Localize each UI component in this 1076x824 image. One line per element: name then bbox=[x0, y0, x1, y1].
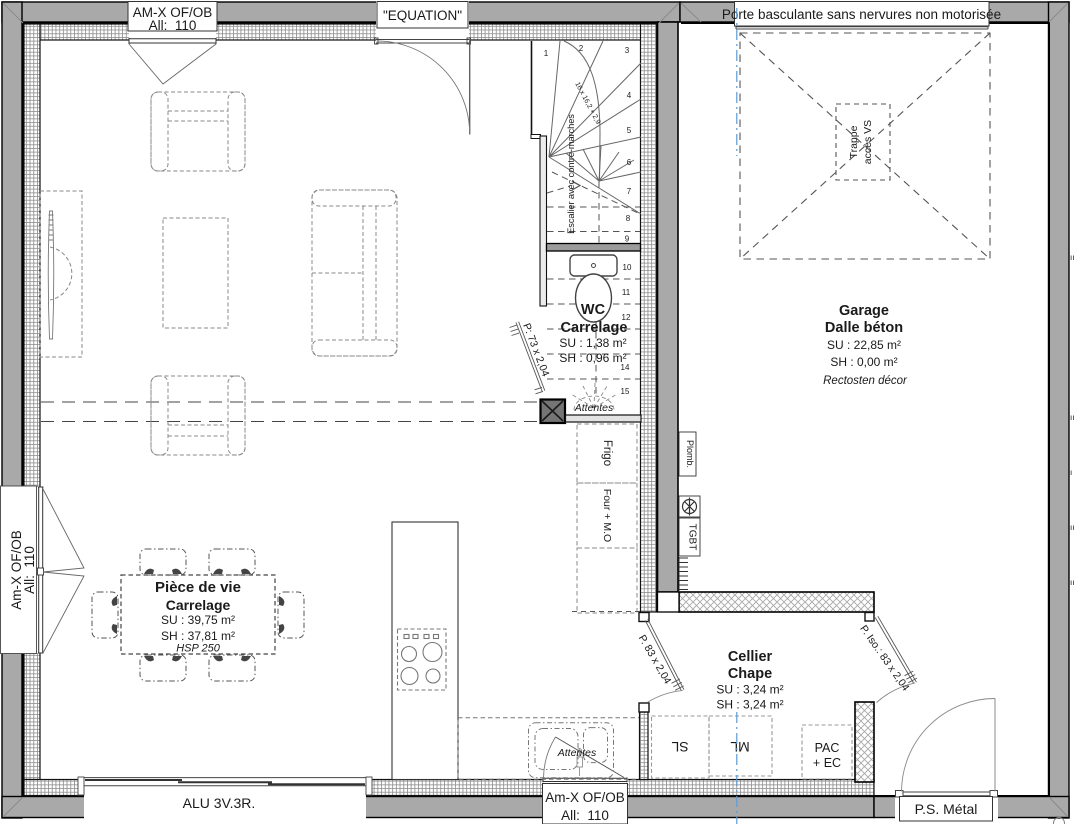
svg-text:All: 110: All: 110 bbox=[149, 18, 197, 33]
svg-text:Garage: Garage bbox=[839, 303, 889, 319]
svg-text:Am-X OF/OB: Am-X OF/OB bbox=[545, 790, 625, 805]
svg-text:SH : 3,24 m²: SH : 3,24 m² bbox=[716, 698, 783, 712]
svg-text:SH : 37,81 m²: SH : 37,81 m² bbox=[161, 629, 235, 643]
svg-text:Pièce de vie: Pièce de vie bbox=[155, 579, 241, 596]
svg-text:3: 3 bbox=[625, 46, 630, 55]
svg-text:SL: SL bbox=[671, 739, 688, 755]
svg-text:Carrelage: Carrelage bbox=[561, 320, 628, 336]
svg-text:SH : 0,96 m²: SH : 0,96 m² bbox=[559, 351, 626, 365]
svg-text:Chape: Chape bbox=[728, 666, 772, 682]
svg-text:SU : 22,85 m²: SU : 22,85 m² bbox=[827, 338, 901, 352]
svg-text:Escalier avec contre-marches: Escalier avec contre-marches bbox=[566, 114, 576, 234]
svg-text:ıı: ıı bbox=[1070, 253, 1074, 262]
svg-text:6: 6 bbox=[627, 158, 632, 167]
svg-text:15: 15 bbox=[621, 387, 630, 396]
svg-text:All: 110: All: 110 bbox=[561, 808, 609, 823]
svg-text:SU : 1,38 m²: SU : 1,38 m² bbox=[559, 336, 626, 350]
svg-text:Rectosten décor: Rectosten décor bbox=[823, 375, 908, 387]
svg-text:9: 9 bbox=[625, 235, 630, 244]
svg-text:All: 110: All: 110 bbox=[22, 546, 37, 594]
svg-text:WC: WC bbox=[581, 302, 606, 318]
svg-text:ML: ML bbox=[730, 739, 750, 755]
svg-text:SU : 39,75 m²: SU : 39,75 m² bbox=[161, 613, 235, 627]
svg-text:TGBT: TGBT bbox=[687, 524, 698, 551]
svg-text:Frigo: Frigo bbox=[601, 440, 613, 466]
svg-text:Trappe: Trappe bbox=[848, 125, 860, 158]
svg-text:+ EC: + EC bbox=[813, 756, 841, 770]
svg-text:ALU 3V.3R.: ALU 3V.3R. bbox=[183, 795, 256, 811]
svg-text:5: 5 bbox=[627, 126, 632, 135]
svg-text:Cellier: Cellier bbox=[728, 649, 773, 665]
svg-text:Carrelage: Carrelage bbox=[166, 597, 231, 613]
svg-text:PAC: PAC bbox=[815, 741, 840, 755]
svg-text:SH : 0,00 m²: SH : 0,00 m² bbox=[830, 355, 897, 369]
svg-text:SU : 3,24 m²: SU : 3,24 m² bbox=[716, 683, 783, 697]
svg-text:8: 8 bbox=[626, 214, 631, 223]
svg-text:ıı: ıı bbox=[1070, 523, 1074, 532]
svg-text:7: 7 bbox=[627, 187, 632, 196]
svg-text:Attentes: Attentes bbox=[574, 402, 614, 414]
svg-text:HSP 250: HSP 250 bbox=[176, 643, 221, 655]
svg-text:Plomb.: Plomb. bbox=[685, 440, 695, 468]
svg-text:1: 1 bbox=[544, 49, 549, 58]
svg-text:ıı: ıı bbox=[1070, 578, 1074, 587]
svg-text:4: 4 bbox=[627, 91, 632, 100]
svg-text:ıı: ıı bbox=[1070, 413, 1074, 422]
svg-text:Porte basculante sans nervures: Porte basculante sans nervures non motor… bbox=[722, 7, 1001, 22]
svg-text:10: 10 bbox=[623, 263, 632, 272]
svg-text:ı: ı bbox=[1070, 468, 1072, 477]
svg-text:11: 11 bbox=[622, 288, 631, 297]
svg-text:2: 2 bbox=[579, 44, 584, 53]
svg-text:Four + M.O: Four + M.O bbox=[601, 489, 613, 542]
svg-text:Attentes: Attentes bbox=[557, 747, 597, 759]
svg-text:accès VS: accès VS bbox=[862, 120, 874, 164]
svg-text:Dalle béton: Dalle béton bbox=[825, 320, 903, 336]
svg-text:"EQUATION": "EQUATION" bbox=[383, 8, 462, 23]
svg-text:P.S. Métal: P.S. Métal bbox=[915, 801, 978, 817]
